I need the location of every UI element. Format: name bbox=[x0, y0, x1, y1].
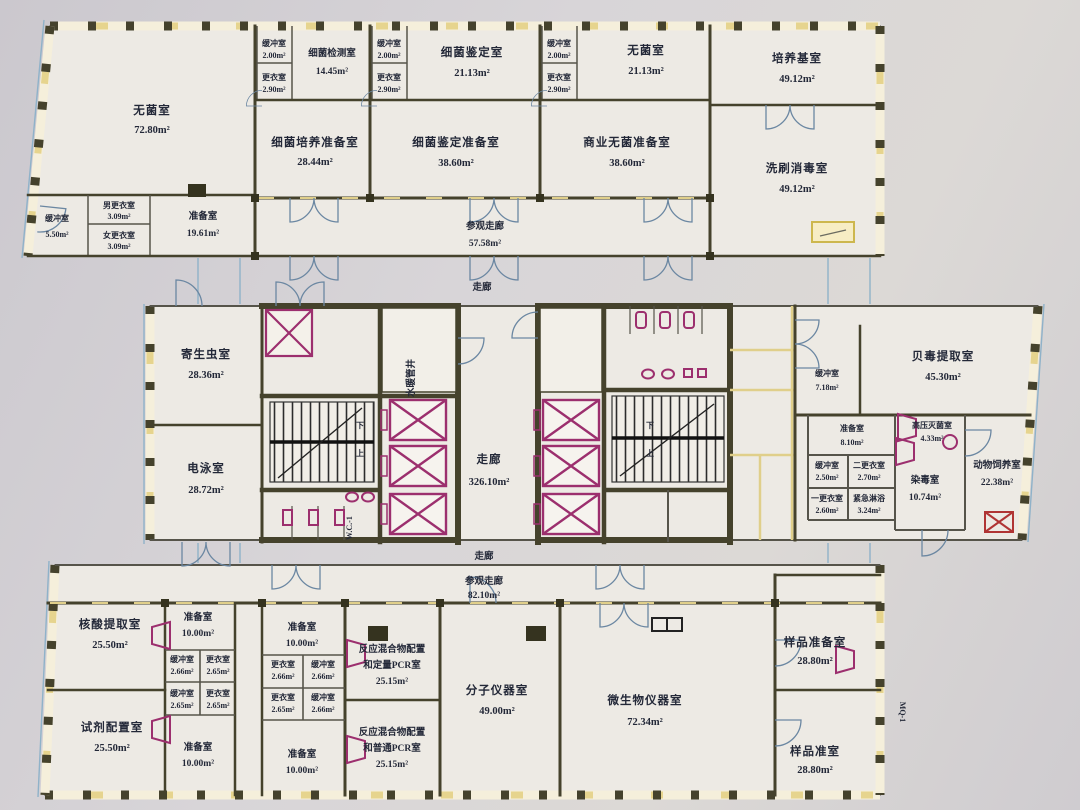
pipe-shaft-label: 水暖管井 bbox=[405, 359, 417, 398]
room-name: 准备室 bbox=[184, 611, 213, 623]
room-name: 微生物仪器室 bbox=[607, 693, 683, 707]
room-area: 2.00m² bbox=[262, 51, 286, 60]
room-name: 女更衣室 bbox=[103, 230, 135, 240]
room-name: 细菌鉴定室 bbox=[441, 45, 504, 59]
room-area: 38.60m² bbox=[609, 158, 645, 169]
room-area: 3.24m² bbox=[857, 506, 881, 515]
room-area: 10.00m² bbox=[182, 629, 214, 639]
room-name: 男更衣室 bbox=[103, 200, 135, 210]
room-area: 49.00m² bbox=[479, 706, 515, 717]
floor-plan-photo: 无菌室 72.80m² 缓冲室 5.50m² 男更衣室 3.09m² 女更衣室 … bbox=[0, 0, 1080, 810]
room-name: 缓冲室 bbox=[170, 688, 194, 698]
room-area: 2.90m² bbox=[547, 85, 571, 94]
room-area: 2.90m² bbox=[262, 85, 286, 94]
room-name: 准备室 bbox=[189, 210, 218, 222]
room-area: 45.30m² bbox=[925, 372, 961, 383]
room-name-line2: 和普通PCR室 bbox=[362, 742, 421, 754]
room-area: 3.09m² bbox=[107, 242, 131, 251]
room-area: 10.74m² bbox=[909, 493, 941, 503]
room-name: 细菌培养准备室 bbox=[271, 135, 359, 149]
room-name: 样品准室 bbox=[790, 744, 840, 758]
room-name: 缓冲室 bbox=[170, 654, 194, 664]
room-area: 2.65m² bbox=[271, 705, 295, 714]
room-name: 一更衣室 bbox=[811, 493, 843, 503]
room-name: 准备室 bbox=[288, 621, 317, 633]
stair-up-label: 上 bbox=[646, 448, 654, 458]
room-name: 更衣室 bbox=[547, 72, 571, 82]
room-area: 28.44m² bbox=[297, 157, 333, 168]
room-name: 缓冲室 bbox=[815, 460, 839, 470]
room-name: 高压灭菌室 bbox=[912, 420, 952, 430]
room-area: 25.15m² bbox=[376, 677, 408, 687]
corridor-top-label: 走廊 bbox=[471, 281, 492, 293]
corridor-area: 326.10m² bbox=[469, 477, 510, 488]
room-area: 25.50m² bbox=[92, 640, 128, 651]
room-area: 4.33m² bbox=[920, 434, 944, 443]
room-area: 2.50m² bbox=[815, 473, 839, 482]
room-name: 细菌检测室 bbox=[308, 47, 356, 59]
room-name: 样品准备室 bbox=[784, 635, 847, 649]
room-area: 38.60m² bbox=[438, 158, 474, 169]
room-name: 洗刷消毒室 bbox=[766, 161, 829, 175]
room-area: 7.18m² bbox=[815, 383, 839, 392]
room-name: 染毒室 bbox=[910, 474, 940, 486]
room-area: 19.61m² bbox=[187, 229, 219, 239]
room-area: 2.66m² bbox=[271, 672, 295, 681]
room-area: 28.36m² bbox=[188, 370, 224, 381]
room-area: 2.60m² bbox=[815, 506, 839, 515]
mq1-label: MQ-1 bbox=[898, 702, 907, 722]
corridor-area: 82.10m² bbox=[468, 591, 500, 601]
room-area: 3.09m² bbox=[107, 212, 131, 221]
room-area: 2.66m² bbox=[311, 672, 335, 681]
room-name: 电泳室 bbox=[187, 461, 225, 475]
room-name: 动物饲养室 bbox=[973, 459, 1021, 471]
room-name: 缓冲室 bbox=[377, 38, 401, 48]
room-name: 缓冲室 bbox=[311, 692, 335, 702]
corridor-name: 参观走廊 bbox=[465, 220, 505, 232]
room-name: 缓冲室 bbox=[45, 213, 69, 223]
room-area: 72.34m² bbox=[627, 717, 663, 728]
room-area: 49.12m² bbox=[779, 184, 815, 195]
shaft-box bbox=[188, 184, 206, 197]
exit-marker bbox=[812, 222, 854, 242]
stair-up-label: 上 bbox=[356, 448, 364, 458]
room-area: 14.45m² bbox=[316, 67, 348, 77]
room-area: 25.15m² bbox=[376, 760, 408, 770]
room-area: 2.65m² bbox=[206, 667, 230, 676]
room-area: 2.66m² bbox=[311, 705, 335, 714]
room-area: 2.70m² bbox=[857, 473, 881, 482]
room-area: 10.00m² bbox=[182, 759, 214, 769]
room-name: 核酸提取室 bbox=[79, 617, 142, 631]
corridor-name: 走廊 bbox=[476, 452, 502, 466]
room-area: 2.00m² bbox=[377, 51, 401, 60]
room-name-line2: 和定量PCR室 bbox=[362, 659, 421, 671]
room-area: 8.10m² bbox=[840, 438, 864, 447]
corridor-area: 57.58m² bbox=[469, 239, 501, 249]
room-area: 28.80m² bbox=[797, 765, 833, 776]
stair-down-label: 下 bbox=[646, 421, 654, 430]
stair-down-label: 下 bbox=[356, 421, 364, 430]
room-name: 更衣室 bbox=[271, 692, 295, 702]
room-area: 72.80m² bbox=[134, 125, 170, 136]
room-area: 21.13m² bbox=[628, 66, 664, 77]
building-floors bbox=[28, 26, 1038, 795]
room-area: 28.80m² bbox=[797, 656, 833, 667]
room-name: 缓冲室 bbox=[547, 38, 571, 48]
room-area: 2.00m² bbox=[547, 51, 571, 60]
room-name: 商业无菌准备室 bbox=[583, 135, 671, 149]
room-name: 更衣室 bbox=[271, 659, 295, 669]
room-name: 无菌室 bbox=[132, 103, 171, 117]
room-name: 缓冲室 bbox=[815, 368, 839, 378]
room-area: 25.50m² bbox=[94, 743, 130, 754]
room-area: 2.65m² bbox=[206, 701, 230, 710]
room-name: 贝毒提取室 bbox=[912, 349, 975, 363]
floor-plan-svg: 无菌室 72.80m² 缓冲室 5.50m² 男更衣室 3.09m² 女更衣室 … bbox=[0, 0, 1080, 810]
corridor-bottom-label: 走廊 bbox=[473, 550, 494, 562]
room-name: 更衣室 bbox=[262, 72, 286, 82]
pipe-shaft-box bbox=[382, 308, 456, 392]
room-name: 准备室 bbox=[840, 423, 864, 433]
room-name: 准备室 bbox=[184, 741, 213, 753]
room-name: 准备室 bbox=[288, 748, 317, 760]
room-name: 试剂配置室 bbox=[81, 720, 144, 734]
room-name: 更衣室 bbox=[206, 688, 230, 698]
room-name: 细菌鉴定准备室 bbox=[412, 135, 500, 149]
room-area: 10.00m² bbox=[286, 766, 318, 776]
room-name: 更衣室 bbox=[377, 72, 401, 82]
room-name-line1: 反应混合物配置 bbox=[359, 643, 426, 655]
room-name: 二更衣室 bbox=[853, 460, 885, 470]
room-name: 寄生虫室 bbox=[181, 347, 231, 361]
room-name: 分子仪器室 bbox=[466, 683, 529, 697]
room-area: 2.66m² bbox=[170, 667, 194, 676]
room-area: 2.90m² bbox=[377, 85, 401, 94]
room-name: 紧急淋浴 bbox=[853, 493, 886, 503]
room-area: 28.72m² bbox=[188, 485, 224, 496]
room-area: 21.13m² bbox=[454, 68, 490, 79]
room-name: 培养基室 bbox=[772, 51, 822, 65]
room-area: 10.00m² bbox=[286, 639, 318, 649]
room-name-line1: 反应混合物配置 bbox=[359, 726, 426, 738]
room-area: 49.12m² bbox=[779, 74, 815, 85]
room-name: 缓冲室 bbox=[262, 38, 286, 48]
wc1-label: W.C.-1 bbox=[345, 516, 354, 540]
room-area: 22.38m² bbox=[981, 478, 1013, 488]
room-area: 5.50m² bbox=[45, 230, 69, 239]
room-name: 缓冲室 bbox=[311, 659, 335, 669]
room-area: 2.65m² bbox=[170, 701, 194, 710]
room-name: 更衣室 bbox=[206, 654, 230, 664]
corridor-name: 参观走廊 bbox=[464, 575, 504, 587]
room-name: 无菌室 bbox=[626, 43, 665, 57]
bottom-wing-floor bbox=[45, 565, 880, 795]
